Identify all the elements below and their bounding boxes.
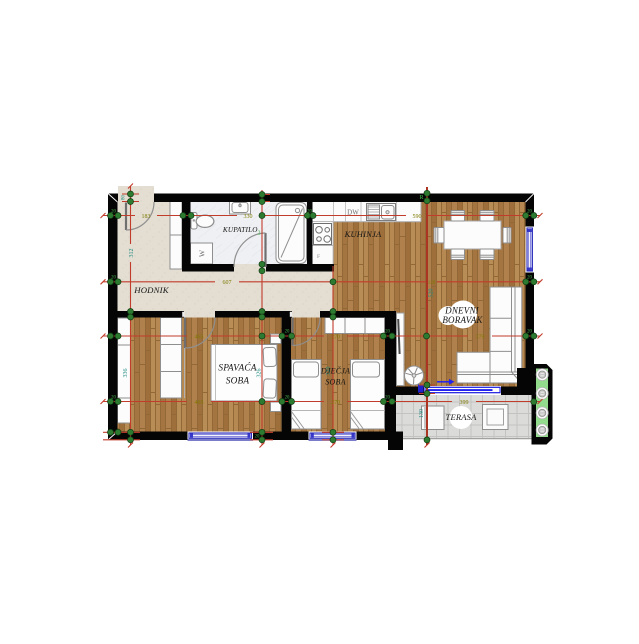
svg-text:336: 336: [123, 369, 129, 378]
svg-text:HODNIK: HODNIK: [133, 285, 170, 295]
svg-text:20: 20: [255, 435, 260, 440]
svg-text:20: 20: [527, 210, 532, 215]
svg-text:DJEČJA: DJEČJA: [320, 366, 350, 376]
svg-text:R: R: [419, 195, 423, 201]
svg-text:F: F: [317, 254, 320, 260]
svg-text:20: 20: [527, 276, 532, 281]
svg-text:2: 2: [258, 231, 261, 237]
svg-text:W: W: [198, 249, 207, 257]
svg-text:520: 520: [429, 289, 435, 298]
svg-text:20: 20: [111, 210, 116, 215]
svg-text:465: 465: [195, 400, 204, 406]
svg-text:20: 20: [385, 396, 390, 401]
svg-text:183: 183: [142, 214, 151, 220]
svg-text:SOBA: SOBA: [325, 378, 345, 387]
svg-text:20: 20: [385, 330, 390, 335]
svg-text:20: 20: [111, 396, 116, 401]
svg-text:20: 20: [307, 210, 312, 215]
svg-text:607: 607: [223, 280, 232, 286]
svg-text:SPAVAĆA: SPAVAĆA: [218, 362, 256, 374]
svg-text:312: 312: [129, 249, 135, 258]
svg-text:139: 139: [428, 281, 436, 286]
svg-text:80: 80: [122, 195, 127, 201]
svg-text:TERASA: TERASA: [446, 412, 478, 422]
svg-text:20: 20: [285, 396, 290, 401]
svg-text:330: 330: [244, 214, 253, 220]
svg-text:KUHINJA: KUHINJA: [344, 229, 382, 239]
svg-text:326: 326: [257, 369, 263, 378]
svg-text:130: 130: [419, 409, 425, 418]
svg-text:20: 20: [111, 276, 116, 281]
svg-text:270: 270: [331, 400, 340, 406]
svg-text:20: 20: [285, 330, 290, 335]
svg-text:465: 465: [195, 334, 204, 340]
svg-text:20: 20: [527, 330, 532, 335]
svg-text:590: 590: [413, 214, 422, 220]
svg-text:SOBA: SOBA: [226, 377, 250, 387]
svg-text:270: 270: [331, 334, 340, 340]
svg-text:KUPATILO: KUPATILO: [222, 226, 258, 234]
svg-text:399: 399: [460, 400, 469, 406]
svg-text:DNEVNI: DNEVNI: [444, 306, 480, 316]
svg-text:379: 379: [476, 334, 485, 340]
svg-text:BORAVAK: BORAVAK: [442, 315, 483, 325]
